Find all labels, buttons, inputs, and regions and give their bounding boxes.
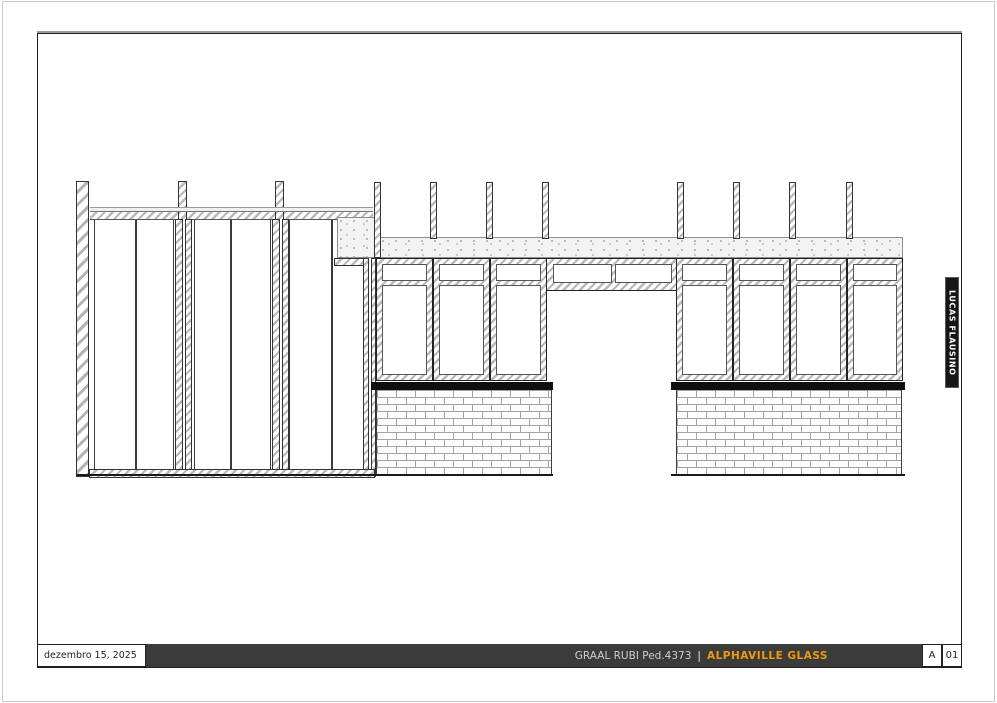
roof-post bbox=[789, 182, 796, 239]
title-separator: | bbox=[697, 650, 701, 662]
roof-post bbox=[733, 182, 740, 239]
top-post bbox=[178, 181, 187, 220]
date-cell: dezembro 15, 2025 bbox=[37, 644, 146, 667]
window bbox=[490, 258, 547, 381]
brick-wall bbox=[676, 390, 902, 474]
ground-line bbox=[76, 474, 553, 476]
author-name: LUCAS FLAUSINO bbox=[948, 290, 957, 376]
title-bar: GRAAL RUBI Ped.4373 | ALPHAVILLE GLASS bbox=[146, 644, 922, 667]
company-name: ALPHAVILLE GLASS bbox=[707, 650, 828, 662]
window-sill bbox=[671, 382, 905, 390]
roof-post bbox=[486, 182, 493, 239]
transom-pane bbox=[615, 264, 672, 283]
author-side-tab: LUCAS FLAUSINO bbox=[945, 277, 959, 388]
top-post bbox=[275, 181, 284, 220]
date-text: dezembro 15, 2025 bbox=[44, 650, 137, 661]
mullion bbox=[175, 219, 192, 471]
window bbox=[790, 258, 847, 381]
revision-letter: A bbox=[929, 650, 936, 661]
concrete-beam bbox=[379, 237, 903, 258]
boundary-mullion bbox=[363, 258, 376, 477]
door-transom bbox=[546, 258, 677, 291]
glass-panel bbox=[194, 219, 231, 470]
drawing-sheet-page: LUCAS FLAUSINO dezembro 15, 2025 GRAAL R… bbox=[0, 0, 997, 703]
head-track-line bbox=[90, 207, 373, 212]
glass-panel bbox=[94, 219, 136, 470]
left-end-post bbox=[76, 181, 89, 477]
transom-pane bbox=[553, 264, 612, 283]
revision-cell: A bbox=[922, 644, 942, 667]
window-sill bbox=[371, 382, 553, 390]
glass-panel bbox=[136, 219, 174, 470]
brick-wall bbox=[376, 390, 552, 474]
window bbox=[376, 258, 433, 381]
project-title: GRAAL RUBI Ped.4373 bbox=[575, 650, 692, 662]
window bbox=[733, 258, 790, 381]
step-rail bbox=[334, 258, 366, 266]
head-rail-hatch bbox=[90, 212, 373, 220]
window bbox=[433, 258, 490, 381]
window bbox=[676, 258, 733, 381]
roof-post bbox=[430, 182, 437, 239]
mullion bbox=[272, 219, 289, 471]
glass-panel bbox=[231, 219, 271, 470]
roof-post bbox=[542, 182, 549, 239]
roof-post bbox=[374, 182, 381, 258]
window bbox=[847, 258, 903, 381]
roof-post bbox=[677, 182, 684, 239]
roof-post bbox=[846, 182, 853, 239]
glass-panel bbox=[289, 219, 332, 470]
sheet-number: 01 bbox=[946, 650, 959, 661]
ground-line bbox=[671, 474, 905, 476]
sheet-number-cell: 01 bbox=[942, 644, 962, 667]
